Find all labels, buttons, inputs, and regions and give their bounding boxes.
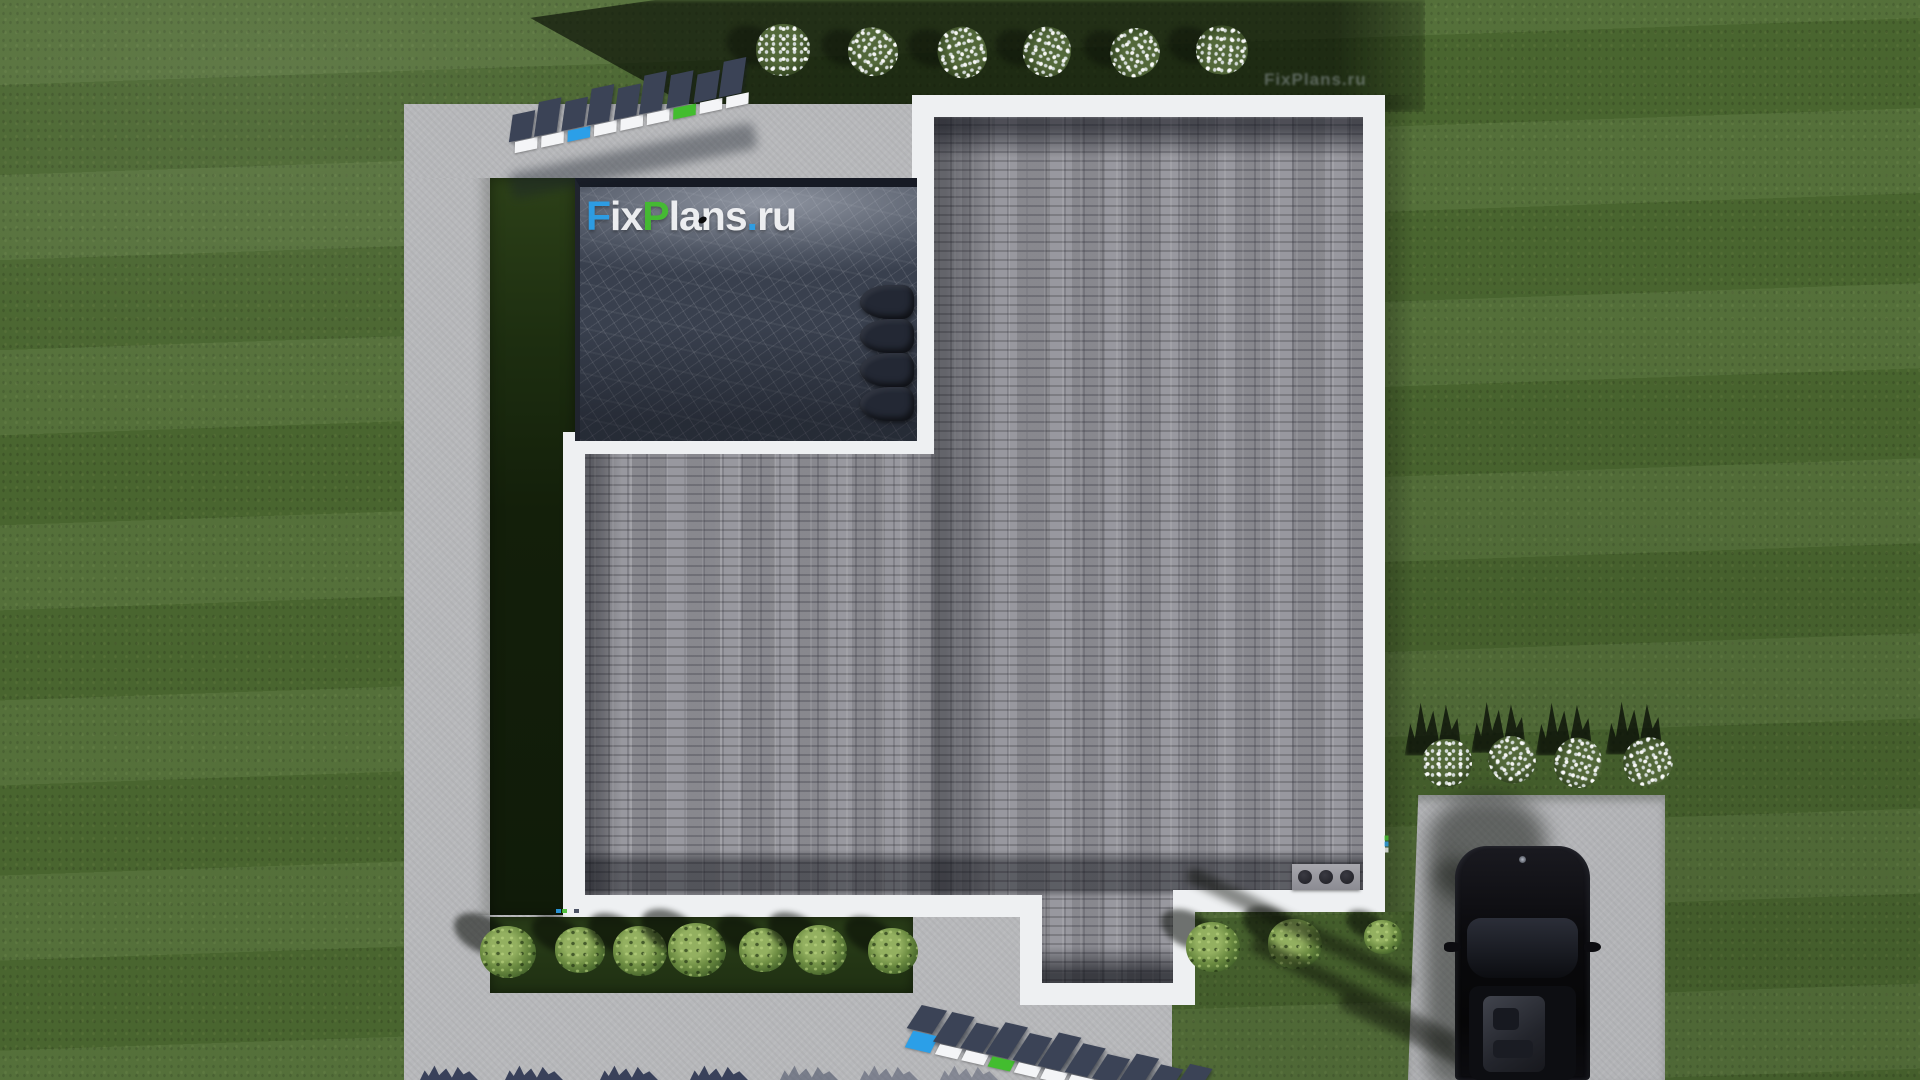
tree-silhouette	[940, 1064, 998, 1080]
aerial-house-render: FixPlans.ru	[0, 0, 1920, 1080]
tree-silhouette	[780, 1064, 838, 1080]
tree-silhouette	[860, 1064, 918, 1080]
tree-silhouette	[600, 1064, 658, 1080]
tree-silhouette	[505, 1064, 563, 1080]
bottom-tree-silhouettes	[0, 0, 1920, 1080]
tree-silhouette	[690, 1064, 748, 1080]
tree-silhouette	[420, 1064, 478, 1080]
